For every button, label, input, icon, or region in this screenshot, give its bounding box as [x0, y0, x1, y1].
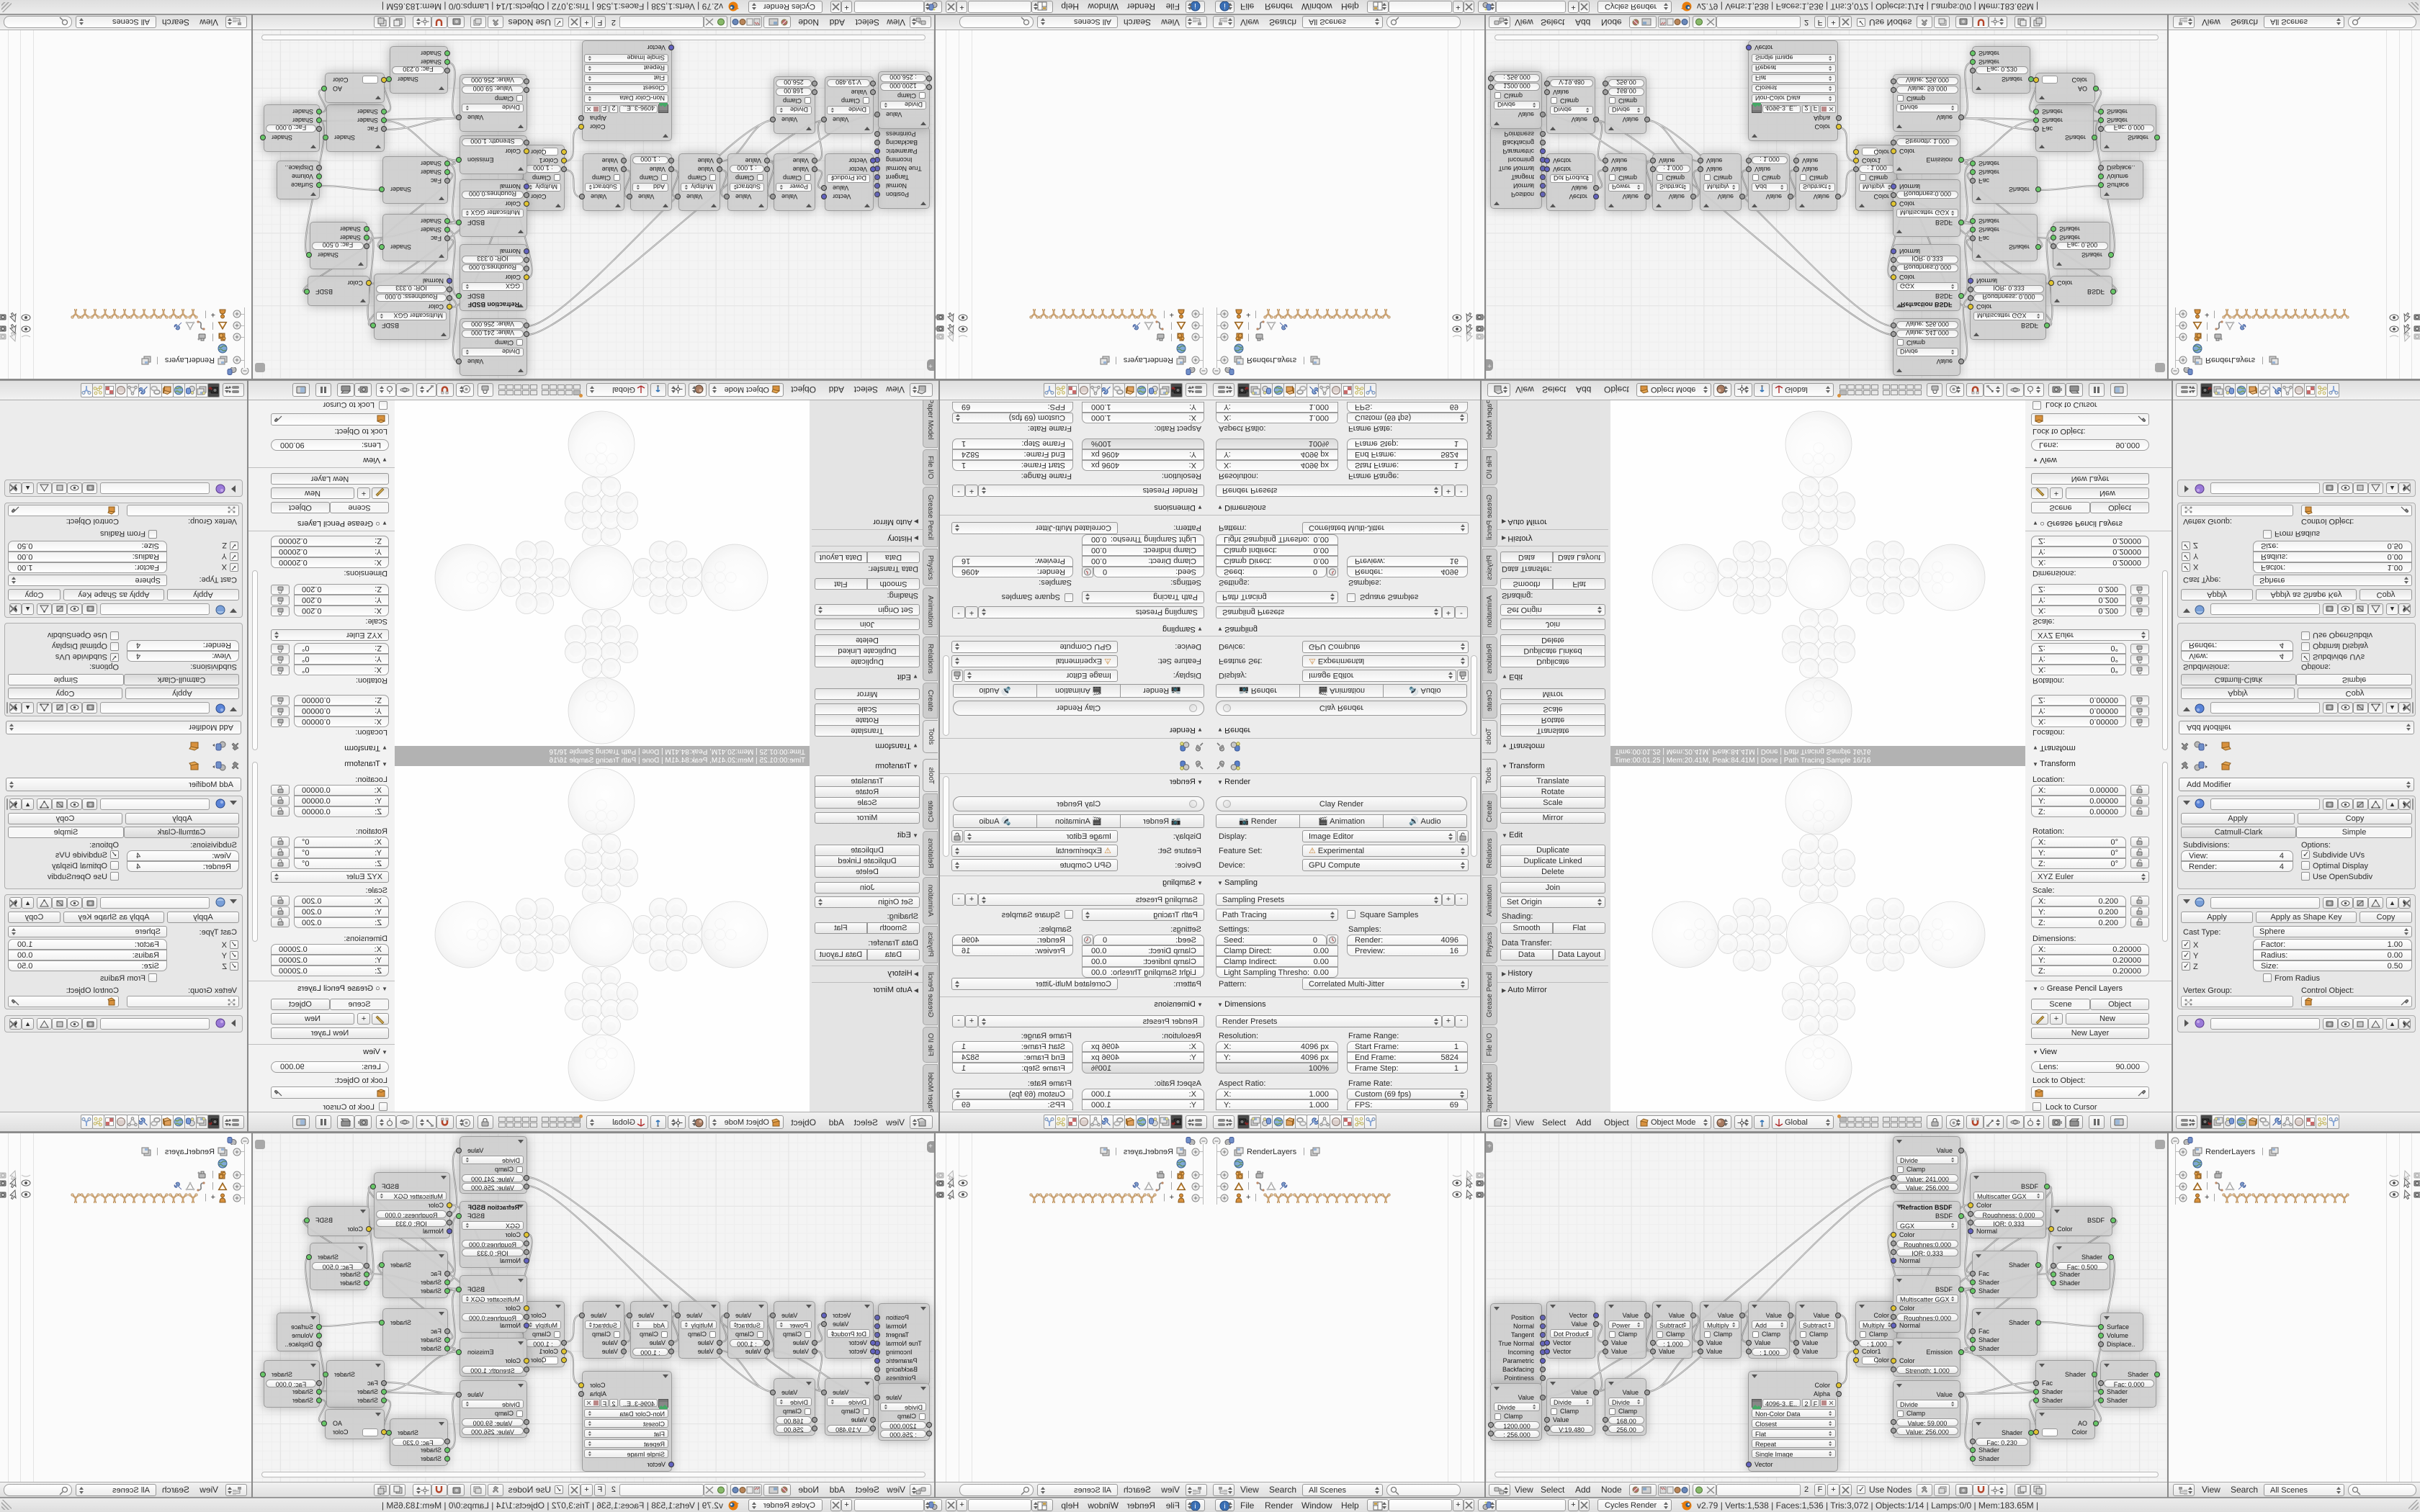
svg-text:i: i — [1194, 1, 1196, 9]
svg-text:i: i — [1224, 1503, 1225, 1511]
svg-text:i: i — [1224, 1, 1225, 9]
svg-text:i: i — [1194, 1503, 1196, 1511]
